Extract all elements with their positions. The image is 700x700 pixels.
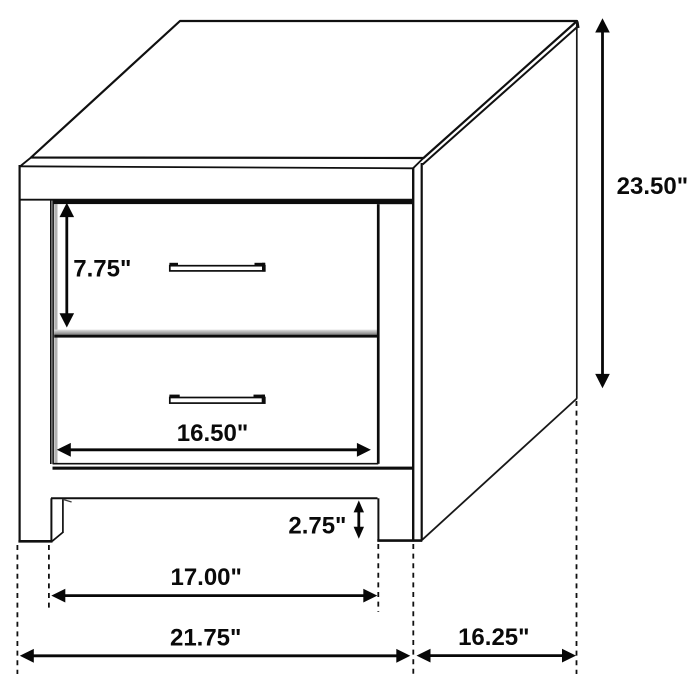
svg-text:7.75": 7.75": [73, 256, 131, 283]
svg-text:16.50": 16.50": [177, 420, 248, 447]
svg-text:21.75": 21.75": [170, 625, 241, 652]
svg-text:17.00": 17.00": [170, 564, 241, 591]
svg-text:16.25": 16.25": [458, 624, 529, 651]
svg-text:23.50": 23.50": [617, 173, 688, 200]
svg-text:2.75": 2.75": [288, 513, 346, 540]
